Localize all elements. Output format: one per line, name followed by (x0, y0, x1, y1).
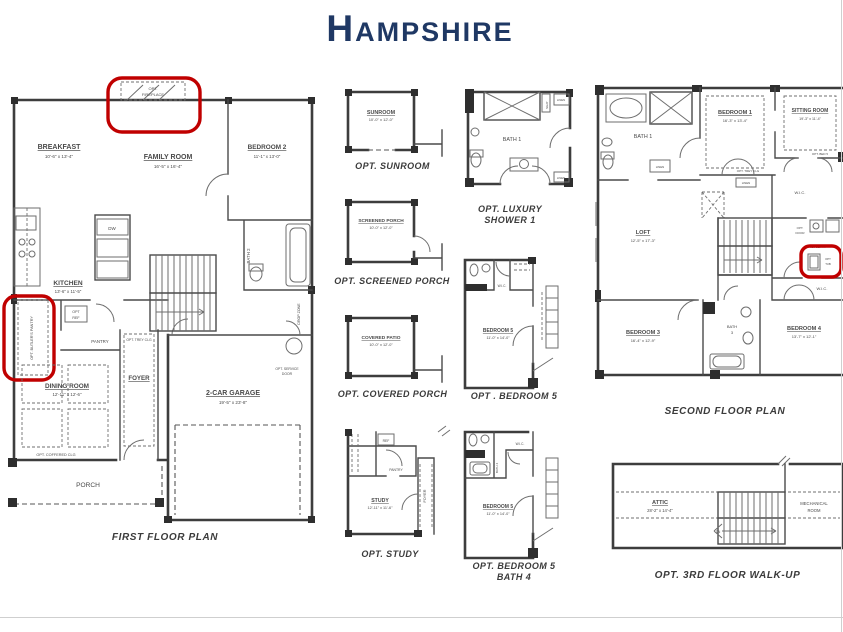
opt-ref-label-1: OPT (72, 310, 80, 314)
attic-label: ATTIC (652, 500, 668, 506)
sf-linen-label-2: LINEN (742, 181, 751, 185)
bedroom5-label: BEDROOM 5 (483, 328, 514, 334)
covered-patio-label: COVERED PATIO (362, 335, 401, 341)
bedroom3-area: BEDROOM 3 16'-4" x 12'-9" (626, 300, 698, 343)
attic-dims: 28'-2" x 14'-4" (647, 508, 673, 513)
opt-study-caption: OPT. STUDY (330, 549, 450, 560)
opt-study-plan: REF PANTRY STUDY 12'-11" x 11'-6" FOYER (338, 424, 456, 546)
screened-porch-label: SCREENED PORCH (358, 218, 404, 224)
bath1-fixtures: LINEN BATH 1 (601, 92, 700, 172)
first-floor-caption: FIRST FLOOR PLAN (85, 532, 245, 543)
porch-label: PORCH (76, 482, 100, 489)
pantry-and-ref: OPT REF PANTRY (65, 306, 109, 344)
breakfast-label: BREAKFAST (38, 144, 82, 151)
bedroom2-label: BEDROOM 2 (248, 144, 287, 151)
bedroom5-bath4-room-label: BEDROOM 5 (483, 504, 514, 510)
sunroom-dims: 10'-0" x 12'-0" (369, 117, 394, 122)
opt-screened-porch-caption: OPT. SCREENED PORCH (328, 276, 456, 287)
linen-bottom-label: LINEN (557, 176, 565, 180)
stairs-second-floor (702, 192, 772, 275)
bedroom2-dims: 11'-1" x 13'-0" (254, 154, 281, 159)
opt-trey-label: OPT. TREY CLG (126, 338, 152, 342)
shower-luxury: SEAT (484, 92, 550, 120)
sitting-label: SITTING ROOM (792, 108, 829, 114)
opt-sunroom-plan: SUNROOM 10'-0" x 12'-0" (338, 86, 456, 164)
bedroom3-dims: 16'-4" x 12'-9" (631, 338, 656, 343)
bedroom5-shelves (542, 286, 558, 348)
loft-dims: 12'-5" x 17'-3" (631, 238, 656, 243)
bedroom5-wic-label: W.I.C. (498, 284, 507, 288)
garage-dims: 19'-5" x 23'-8" (219, 400, 248, 405)
opt-tub-label-2: TUB (825, 262, 831, 266)
kitchen-dims: 13'-6" x 11'-5" (55, 289, 82, 294)
second-floor-plan: LINEN BATH 1 BEDROOM 1 16'-3" x 13'-4" O… (588, 80, 843, 400)
bedroom3-label: BEDROOM 3 (626, 330, 660, 336)
opt-ref-label-2: REF (72, 316, 80, 320)
opt-fireplace-label-2: FIREPLACE (142, 92, 165, 97)
third-floor-caption: OPT. 3RD FLOOR WALK-UP (630, 570, 825, 581)
third-floor-plan: DN ATTIC 28'-2" x 14'-4" MECHANICAL ROOM (610, 452, 843, 568)
foyer-label: FOYER (128, 375, 150, 382)
opt-coffered-label: OPT. COFFERED CLG (36, 453, 75, 457)
fireplace-option: OPT. FIREPLACE (108, 78, 200, 132)
bath4-wic-label: W.I.C. (516, 442, 525, 446)
bath3-label-1: BATH (727, 324, 737, 329)
opt-screened-porch-plan: SCREENED PORCH 10'-0" x 12'-0" (338, 196, 456, 274)
bath4-label: BATH 4 (495, 463, 499, 474)
study-dims: 12'-11" x 11'-6" (368, 506, 394, 510)
family-room-dims: 16'-5" x 16'-4" (154, 164, 183, 169)
highlight-opt-butlers-pantry (4, 296, 54, 380)
bath3-area: BATH 3 (703, 286, 753, 369)
luxury-bath1-label: BATH 1 (503, 137, 521, 143)
opt-bedroom5-bath4-caption-line2: BATH 4 (448, 572, 580, 583)
bath2-label: BATH 2 (246, 248, 251, 264)
opt-covered-porch-plan: COVERED PATIO 10'-0" x 12'-0" (338, 312, 456, 390)
floorplan-slide: HAMPSHIRE OPT. FIREPLACE (0, 0, 843, 632)
opt-bed5-label: OPT. BED 5 (812, 152, 829, 156)
wic1-label: W.I.C. (795, 190, 806, 195)
breakfast-dims: 10'-6" x 13'-4" (45, 154, 74, 159)
foyer-trey-ceiling: OPT. TREY CLG (124, 334, 154, 446)
opt-service-door-label-2: DOOR (282, 372, 293, 376)
study-label: STUDY (371, 498, 389, 504)
bedroom1-dims: 16'-3" x 13'-4" (723, 118, 748, 123)
dining-dims: 12'-11" x 12'-6" (52, 392, 82, 397)
bedroom4-dims: 13'-7" x 12'-1" (792, 334, 817, 339)
sf-bath1-label: BATH 1 (634, 134, 652, 140)
dishwasher-label: DW (108, 226, 116, 231)
study-pantry-label: PANTRY (389, 468, 403, 472)
opt-bedroom5-bath4-plan: BATH 4 W.I.C. BEDROOM 5 11'-0" x 14'-0" (458, 420, 583, 560)
sf-linen-label-1: LINEN (656, 165, 665, 169)
loft-area: LOFT 12'-5" x 17'-3" (631, 230, 656, 243)
opt-sunroom-caption: OPT. SUNROOM (330, 161, 455, 172)
kitchen-label: KITCHEN (53, 280, 83, 287)
wic2-label: W.I.C. (817, 286, 828, 291)
second-floor-caption: SECOND FLOOR PLAN (640, 406, 810, 417)
opt-luxury-shower-caption-line2: SHOWER 1 (450, 215, 570, 226)
mechanical-room-label-1: MECHANICAL (800, 501, 828, 506)
slide-bottom-edge (0, 617, 843, 618)
garage-label: 2-CAR GARAGE (206, 390, 260, 397)
slide-right-edge (841, 0, 842, 632)
mechanical-room-label-2: ROOM (807, 508, 821, 513)
family-room-label: FAMILY ROOM (144, 154, 193, 161)
opt-bedroom5-bath4-caption: OPT. BEDROOM 5 BATH 4 (448, 561, 580, 583)
laundry-area: OPT. DOOR LAUNDRY OPT TUB W.I.C. (784, 220, 841, 291)
bedroom1-label: BEDROOM 1 (718, 110, 752, 116)
opt-bedroom5-plan: W.I.C. BEDROOM 5 11'-0" x 14'-0" (458, 246, 583, 388)
opt-service-door-label-1: OPT. SERVICE (275, 367, 299, 371)
sf-opt-trey-label: OPT. TREY CLG (737, 169, 760, 173)
opt-door-label-2: DOOR (796, 231, 806, 235)
bedroom4-label: BEDROOM 4 (787, 326, 822, 332)
bath3-label-2: 3 (731, 330, 734, 335)
sitting-dims: 19'-3" x 11'-4" (799, 117, 822, 121)
linen-top-label: LINEN (557, 98, 565, 102)
first-floor-plan: OPT. FIREPLACE DW (4, 78, 322, 530)
kitchen-fixtures: DW (14, 208, 130, 286)
opt-butlers-pantry-label: OPT. BUTLER'S PANTRY (30, 316, 34, 360)
study-ref-label: REF (383, 439, 390, 443)
study-foyer-label: FOYER (423, 489, 427, 502)
opt-luxury-shower-plan: SEAT LINEN BATH 1 LINEN (458, 84, 580, 202)
loft-label: LOFT (636, 230, 651, 236)
opt-fireplace-label-1: OPT. (149, 86, 158, 91)
sitting-room-area: SITTING ROOM 19'-3" x 11'-4" OPT. BED 5 … (784, 96, 836, 195)
opt-door-label-1: OPT. (797, 226, 804, 230)
butlers-pantry-option: OPT. BUTLER'S PANTRY (4, 296, 54, 380)
bath2-fixtures (249, 224, 310, 286)
opt-luxury-shower-caption-line1: OPT. LUXURY (450, 204, 570, 215)
garage-details: OPT. SERVICE DOOR (175, 338, 302, 515)
bedroom5-dims: 11'-0" x 14'-0" (486, 336, 510, 340)
stairs-third-floor: DN (714, 464, 785, 544)
pantry-label: PANTRY (91, 339, 108, 344)
bath4-shelves (546, 458, 558, 518)
opt-bedroom5-caption: OPT . BEDROOM 5 (448, 391, 580, 402)
stairs-dn-label: DN (716, 530, 721, 534)
screened-porch-dims: 10'-0" x 12'-0" (369, 226, 393, 230)
opt-tub-label-1: OPT (825, 257, 831, 261)
opt-covered-porch-caption: OPT. COVERED PORCH (330, 389, 455, 400)
opt-bedroom5-bath4-caption-line1: OPT. BEDROOM 5 (448, 561, 580, 572)
drop-zone-label: DROP ZONE (297, 303, 301, 325)
highlight-opt-tub (801, 246, 841, 277)
bedroom1-area: BEDROOM 1 16'-3" x 13'-4" OPT. TREY CLG … (706, 96, 764, 187)
dining-label: DINING ROOM (45, 383, 89, 390)
opt-luxury-shower-caption: OPT. LUXURY SHOWER 1 (450, 204, 570, 226)
covered-patio-dims: 10'-0" x 12'-0" (369, 343, 393, 347)
sunroom-label: SUNROOM (367, 110, 396, 116)
shower-seat-label: SEAT (545, 101, 549, 109)
page-title: HAMPSHIRE (280, 8, 560, 50)
bedroom4-area: BEDROOM 4 13'-7" x 12'-1" (784, 285, 822, 339)
bedroom5-bath4-room-dims: 11'-0" x 14'-0" (486, 512, 510, 516)
